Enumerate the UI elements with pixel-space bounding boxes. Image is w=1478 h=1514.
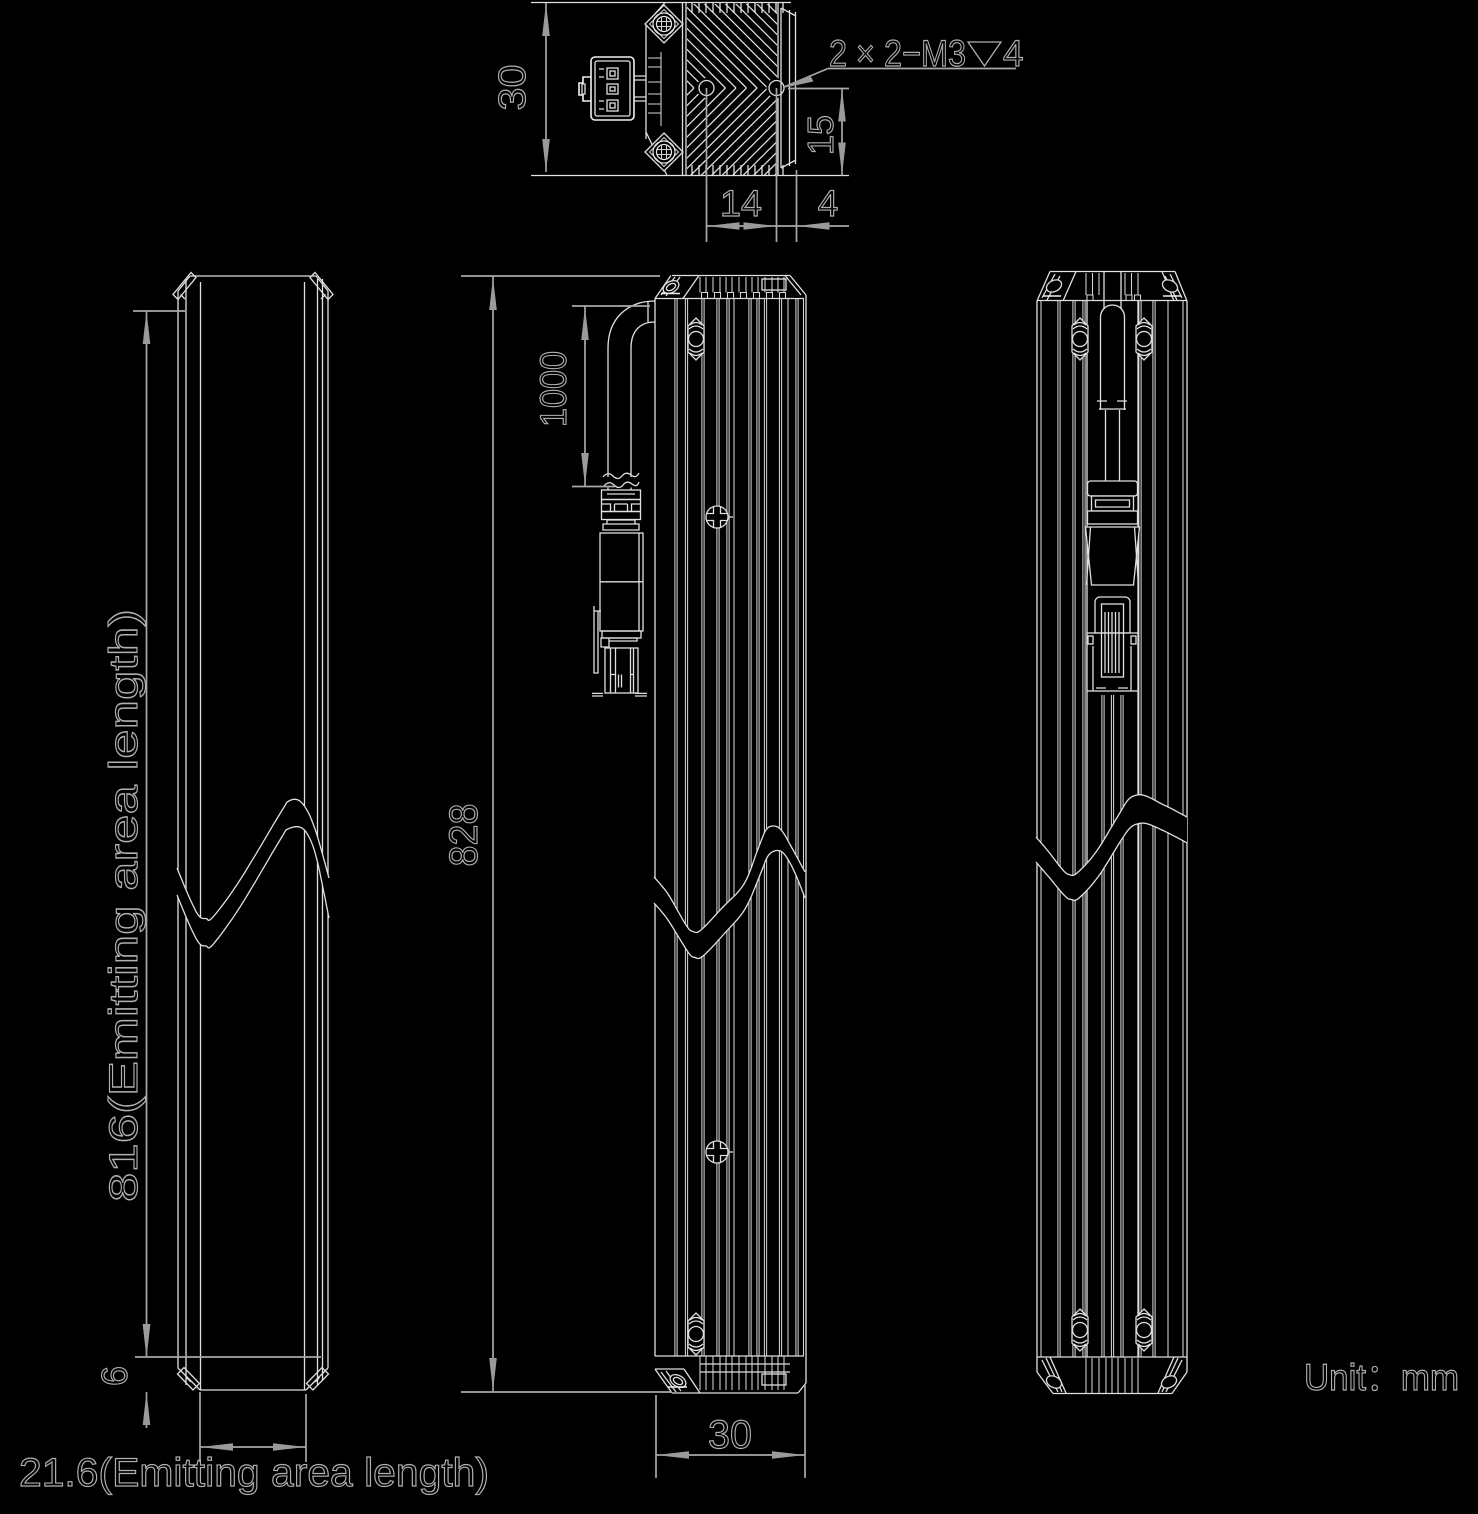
svg-text:30: 30 bbox=[708, 1413, 752, 1457]
svg-text:4: 4 bbox=[818, 183, 839, 224]
svg-text:1000: 1000 bbox=[533, 351, 574, 427]
svg-text:15: 15 bbox=[800, 115, 841, 155]
svg-text:30: 30 bbox=[492, 65, 534, 111]
svg-text:4: 4 bbox=[1003, 33, 1024, 74]
svg-text:828: 828 bbox=[442, 804, 486, 867]
svg-text:Unit：mm: Unit：mm bbox=[1304, 1357, 1459, 1398]
svg-text:14: 14 bbox=[720, 183, 762, 224]
svg-text:6: 6 bbox=[94, 1366, 135, 1386]
svg-text:816(Emitting area length): 816(Emitting area length) bbox=[102, 609, 146, 1202]
svg-text:21.6(Emitting area length): 21.6(Emitting area length) bbox=[19, 1451, 489, 1495]
svg-text:2 × 2−M3: 2 × 2−M3 bbox=[829, 33, 966, 74]
